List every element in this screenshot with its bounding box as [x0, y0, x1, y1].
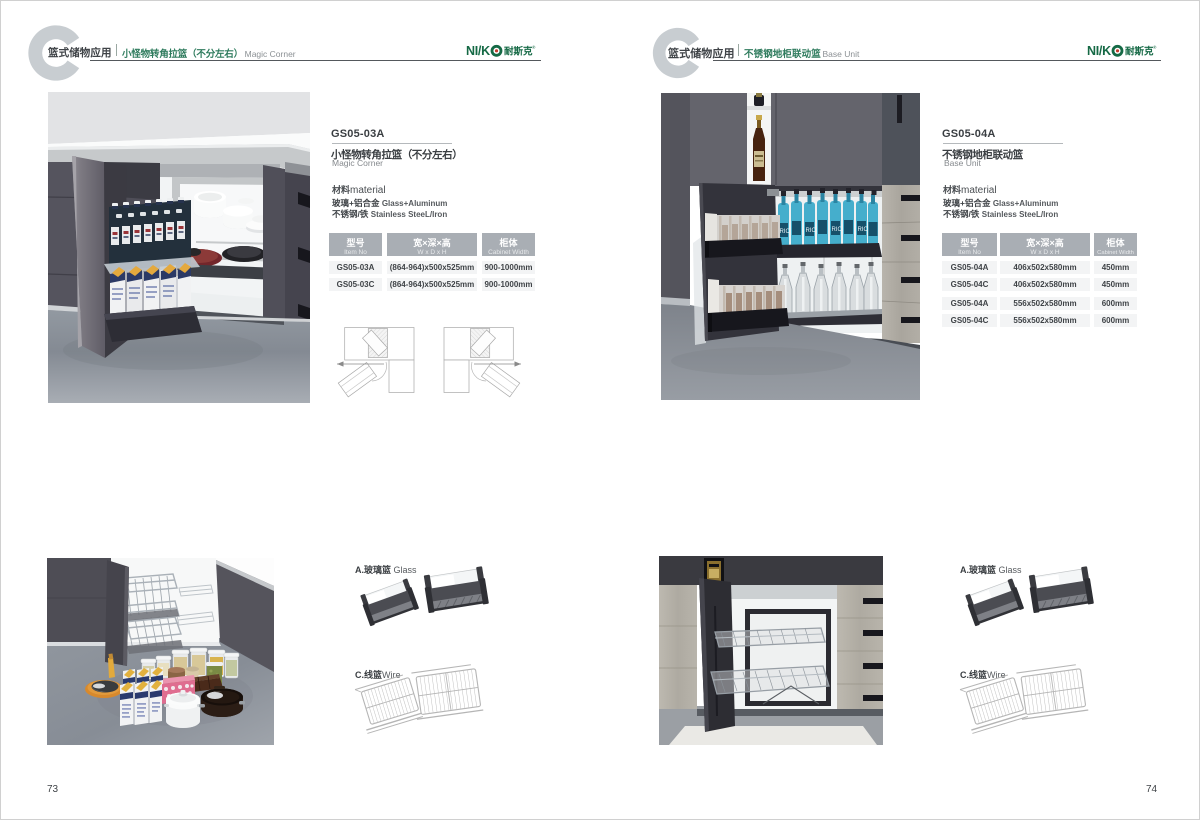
- svg-text:®: ®: [1153, 44, 1157, 50]
- svg-text:RIO: RIO: [780, 229, 791, 235]
- svg-text:RIO: RIO: [858, 227, 869, 233]
- svg-text:RIO: RIO: [832, 227, 843, 233]
- svg-text:NI/K: NI/K: [466, 44, 490, 58]
- svg-text:耐斯克: 耐斯克: [504, 46, 533, 58]
- svg-text:®: ®: [532, 44, 536, 50]
- svg-text:耐斯克: 耐斯克: [1125, 46, 1154, 58]
- svg-text:NI/K: NI/K: [1087, 44, 1111, 58]
- svg-text:RIO: RIO: [806, 228, 817, 234]
